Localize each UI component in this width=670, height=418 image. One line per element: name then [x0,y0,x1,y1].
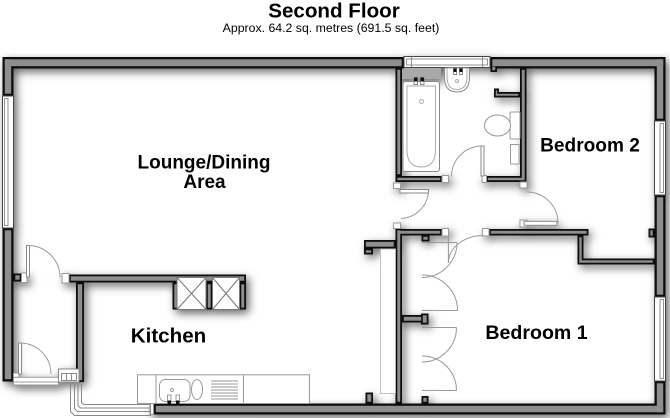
svg-text:Lounge/Dining: Lounge/Dining [138,153,271,174]
svg-text:Area: Area [183,172,226,193]
svg-text:Kitchen: Kitchen [131,325,207,348]
svg-text:Approx. 64.2 sq. metres (691.5: Approx. 64.2 sq. metres (691.5 sq. feet) [223,21,440,35]
svg-text:Bedroom 1: Bedroom 1 [485,322,587,344]
svg-text:Second Floor: Second Floor [268,0,400,23]
svg-text:Bedroom 2: Bedroom 2 [540,136,640,157]
